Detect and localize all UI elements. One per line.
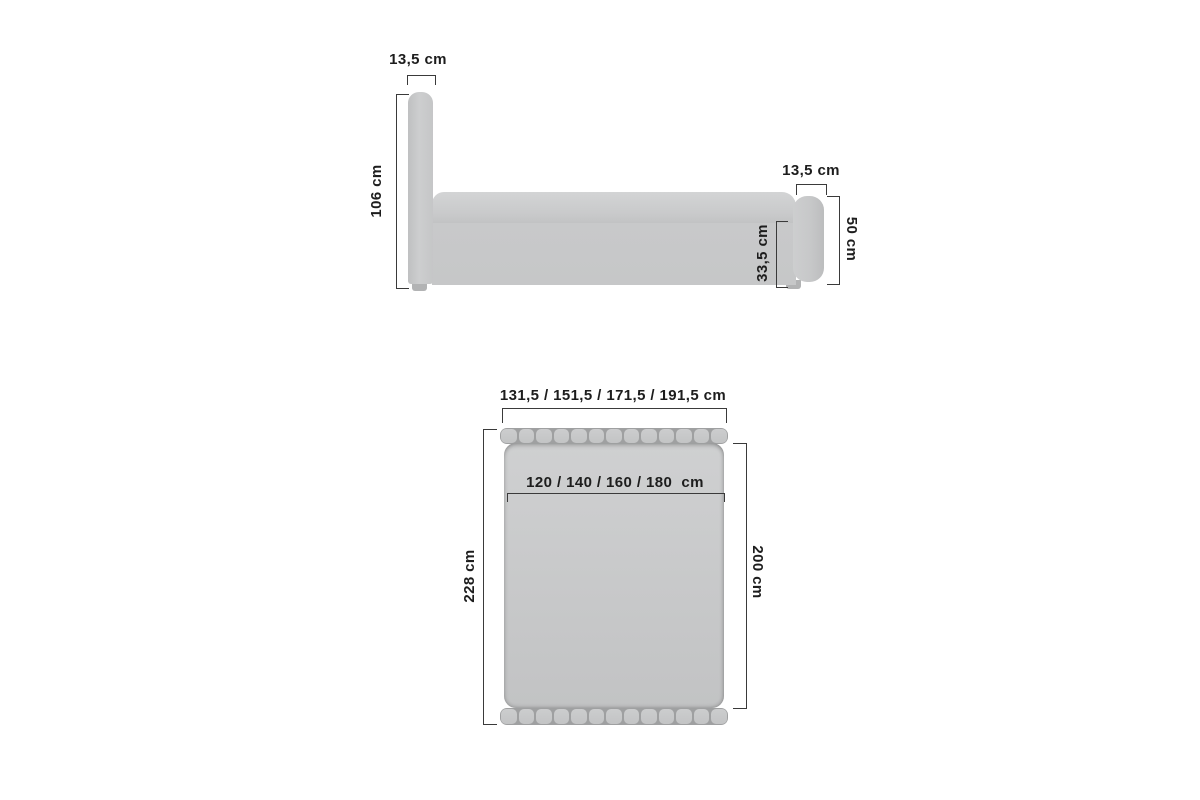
headboard-side xyxy=(408,92,433,284)
headboard-width-label: 13,5 cm xyxy=(358,50,478,70)
mattress-length-label: 200 cm xyxy=(747,532,767,612)
slat-segment xyxy=(694,709,710,724)
overall-width-label: 131,5 / 151,5 / 171,5 / 191,5 cm xyxy=(463,386,763,406)
headboard-leg xyxy=(412,284,427,291)
footboard-width-label: 13,5 cm xyxy=(751,161,871,181)
slat-segment xyxy=(589,709,605,724)
slat-segment xyxy=(641,429,657,443)
footboard-height-bracket xyxy=(827,196,840,285)
mattress-length-bracket xyxy=(733,443,747,709)
mattress-width-bracket xyxy=(507,493,725,502)
footboard-width-bracket xyxy=(796,184,827,195)
slat-segment xyxy=(606,429,622,443)
base-height-label: 33,5 cm xyxy=(753,213,773,293)
slat-segment xyxy=(624,709,640,724)
slat-segment xyxy=(606,709,622,724)
slat-segment xyxy=(571,429,587,443)
slat-segment xyxy=(519,709,535,724)
slat-segment xyxy=(501,429,517,443)
slat-segment xyxy=(554,709,570,724)
footboard-height-label: 50 cm xyxy=(841,199,861,279)
slat-segment xyxy=(711,709,727,724)
headboard-height-label: 106 cm xyxy=(367,151,387,231)
slat-segment xyxy=(571,709,587,724)
overall-width-bracket xyxy=(502,408,727,423)
headboard-height-bracket xyxy=(396,94,409,289)
slat-segment xyxy=(694,429,710,443)
slat-segment xyxy=(519,429,535,443)
footboard-slats xyxy=(500,708,728,725)
slat-segment xyxy=(659,709,675,724)
slat-segment xyxy=(554,429,570,443)
slat-segment xyxy=(589,429,605,443)
base-height-bracket xyxy=(776,221,788,288)
footboard-side xyxy=(793,196,824,282)
slat-segment xyxy=(676,429,692,443)
overall-length-bracket xyxy=(483,429,497,725)
slat-segment xyxy=(676,709,692,724)
slat-segment xyxy=(641,709,657,724)
mattress-side xyxy=(432,192,796,223)
overall-length-label: 228 cm xyxy=(460,536,480,616)
dimension-diagram: 13,5 cm 106 cm 13,5 cm 33,5 cm 50 cm 131… xyxy=(0,0,1200,800)
slat-segment xyxy=(536,429,552,443)
slat-segment xyxy=(536,709,552,724)
headboard-slats xyxy=(500,428,728,444)
bed-frame-side xyxy=(432,221,796,285)
headboard-width-bracket xyxy=(407,75,436,85)
slat-segment xyxy=(659,429,675,443)
slat-segment xyxy=(624,429,640,443)
mattress-width-label: 120 / 140 / 160 / 180 cm xyxy=(465,473,765,493)
slat-segment xyxy=(501,709,517,724)
slat-segment xyxy=(711,429,727,443)
